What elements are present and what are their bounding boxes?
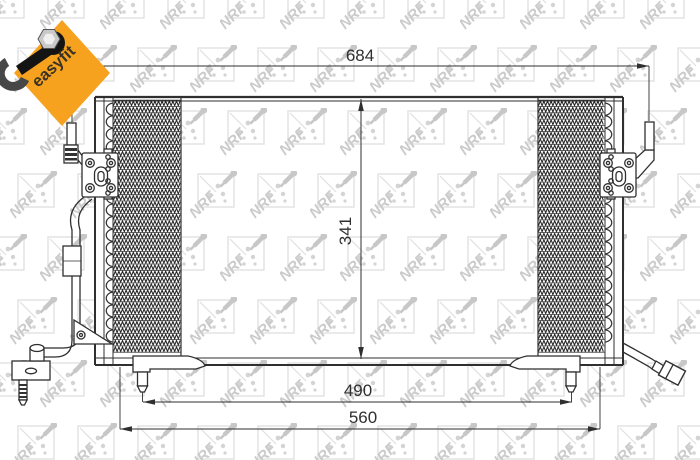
dimension-overall-width-label: 684 <box>346 46 374 65</box>
right-mounting-foot <box>510 356 580 392</box>
dimension-mount-span-label: 560 <box>349 408 377 427</box>
right-outlet-pipe <box>623 343 685 385</box>
left-mounting-foot <box>133 356 205 392</box>
dimension-core-height-label: 341 <box>336 217 355 245</box>
dimension-core-height: 341 <box>336 99 364 359</box>
right-bracket-arm <box>634 150 654 178</box>
dimension-pin-span-label: 490 <box>344 381 372 400</box>
technical-drawing-page: NRF NRF <box>0 0 700 460</box>
fin-texture-right <box>538 100 605 352</box>
right-mounting-pin <box>566 386 576 392</box>
easyfit-badge: easyfit <box>0 0 135 145</box>
left-mounting-pin <box>138 386 148 392</box>
inlet-fitting-block <box>12 361 50 380</box>
right-fixing-stub <box>645 122 654 150</box>
dimension-pin-span: 490 <box>143 381 573 405</box>
